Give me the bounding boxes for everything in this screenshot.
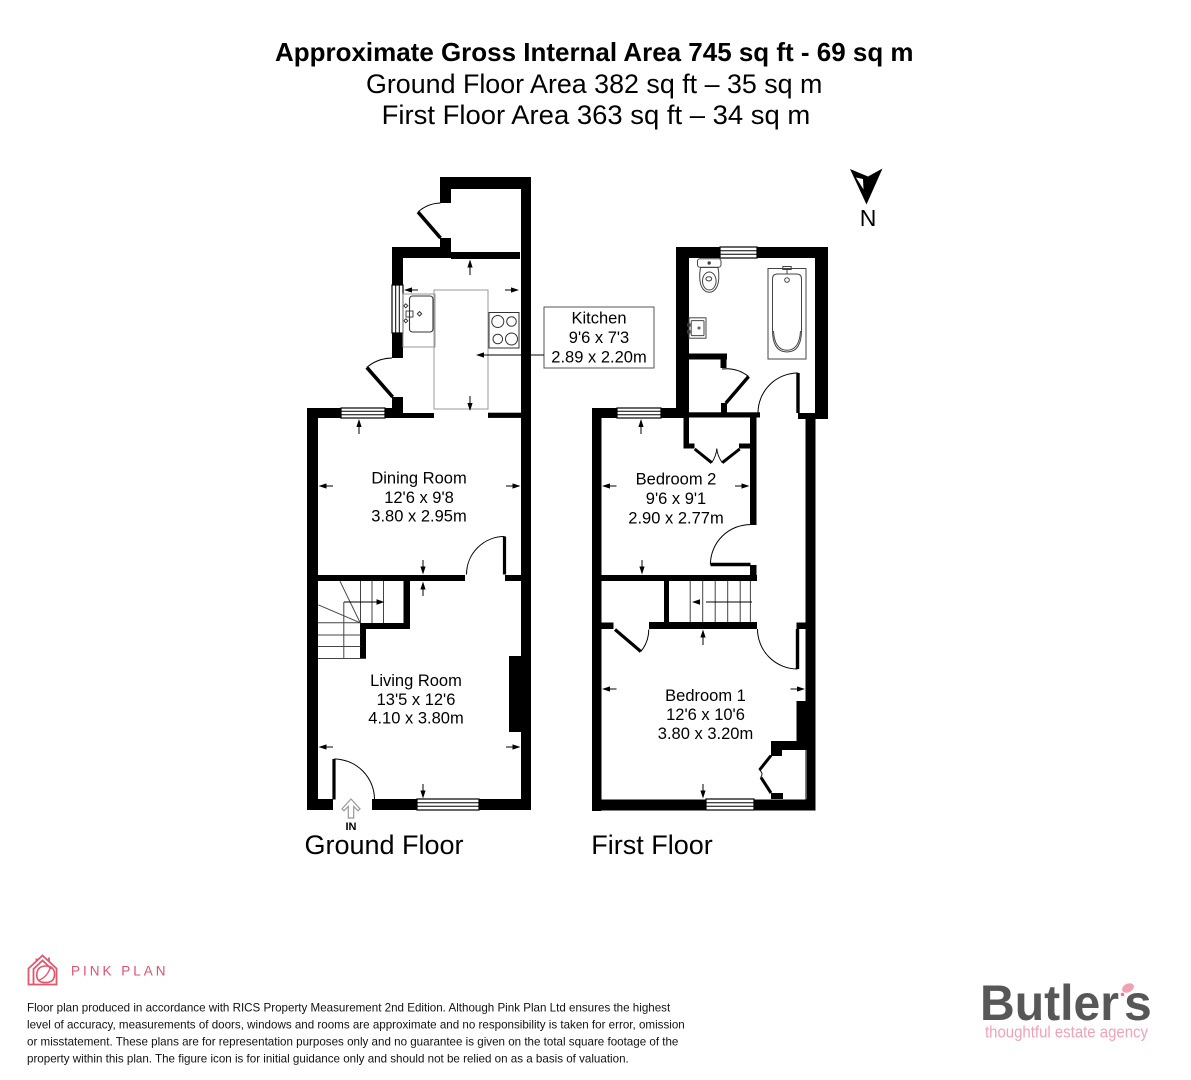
svg-text:Living Room: Living Room bbox=[370, 672, 462, 690]
svg-text:Approximate Gross Internal Are: Approximate Gross Internal Area 745 sq f… bbox=[275, 37, 914, 67]
svg-text:Ground Floor: Ground Floor bbox=[304, 830, 463, 860]
svg-text:12'6 x 10'6: 12'6 x 10'6 bbox=[666, 706, 745, 724]
svg-text:3.80 x 2.95m: 3.80 x 2.95m bbox=[371, 508, 466, 526]
svg-text:12'6 x 9'8: 12'6 x 9'8 bbox=[384, 489, 454, 507]
svg-text:Bedroom 2: Bedroom 2 bbox=[636, 471, 717, 489]
svg-text:Bedroom 1: Bedroom 1 bbox=[665, 687, 746, 705]
svg-text:First Floor: First Floor bbox=[591, 830, 713, 860]
svg-text:9'6 x 9'1: 9'6 x 9'1 bbox=[646, 490, 706, 508]
svg-text:Ground Floor Area 382 sq ft –: Ground Floor Area 382 sq ft – 35 sq m bbox=[366, 69, 822, 99]
svg-text:First Floor Area 363 sq ft – 3: First Floor Area 363 sq ft – 34 sq m bbox=[382, 100, 811, 130]
svg-text:property within this plan. The: property within this plan. The figure ic… bbox=[27, 1053, 629, 1066]
svg-text:N: N bbox=[860, 205, 877, 231]
svg-text:or misstatement. These plans a: or misstatement. These plans are for rep… bbox=[27, 1036, 678, 1049]
svg-text:2.90 x 2.77m: 2.90 x 2.77m bbox=[628, 509, 723, 527]
svg-text:Floor plan produced in accorda: Floor plan produced in accordance with R… bbox=[27, 1002, 671, 1015]
svg-text:thoughtful estate agency: thoughtful estate agency bbox=[985, 1023, 1148, 1042]
svg-text:9'6 x 7'3: 9'6 x 7'3 bbox=[569, 329, 629, 347]
svg-text:13'5 x 12'6: 13'5 x 12'6 bbox=[377, 691, 456, 709]
svg-text:Dining Room: Dining Room bbox=[371, 469, 466, 487]
svg-text:Kitchen: Kitchen bbox=[571, 310, 626, 328]
svg-text:3.80 x 3.20m: 3.80 x 3.20m bbox=[658, 725, 753, 743]
svg-text:level of accuracy, measurement: level of accuracy, measurements of doors… bbox=[27, 1019, 685, 1032]
svg-text:2.89 x 2.20m: 2.89 x 2.20m bbox=[551, 349, 646, 367]
svg-text:PINK PLAN: PINK PLAN bbox=[71, 964, 169, 979]
svg-text:4.10 x 3.80m: 4.10 x 3.80m bbox=[368, 710, 463, 728]
